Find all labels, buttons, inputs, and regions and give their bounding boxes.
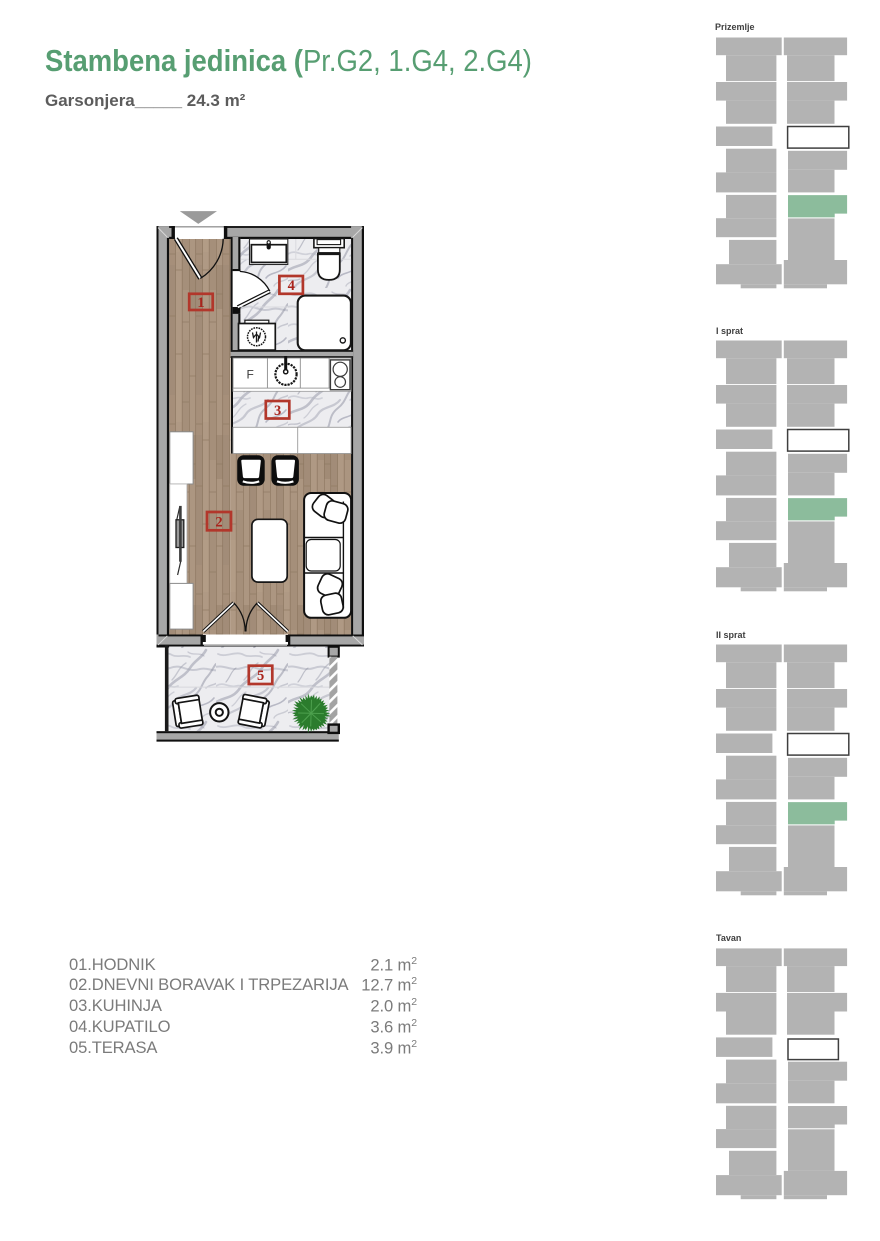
- svg-text:5: 5: [257, 668, 264, 684]
- svg-text:F: F: [247, 368, 254, 382]
- svg-text:3: 3: [274, 403, 281, 419]
- svg-text:4: 4: [288, 278, 295, 294]
- svg-text:2: 2: [215, 514, 222, 530]
- svg-text:1: 1: [197, 295, 204, 311]
